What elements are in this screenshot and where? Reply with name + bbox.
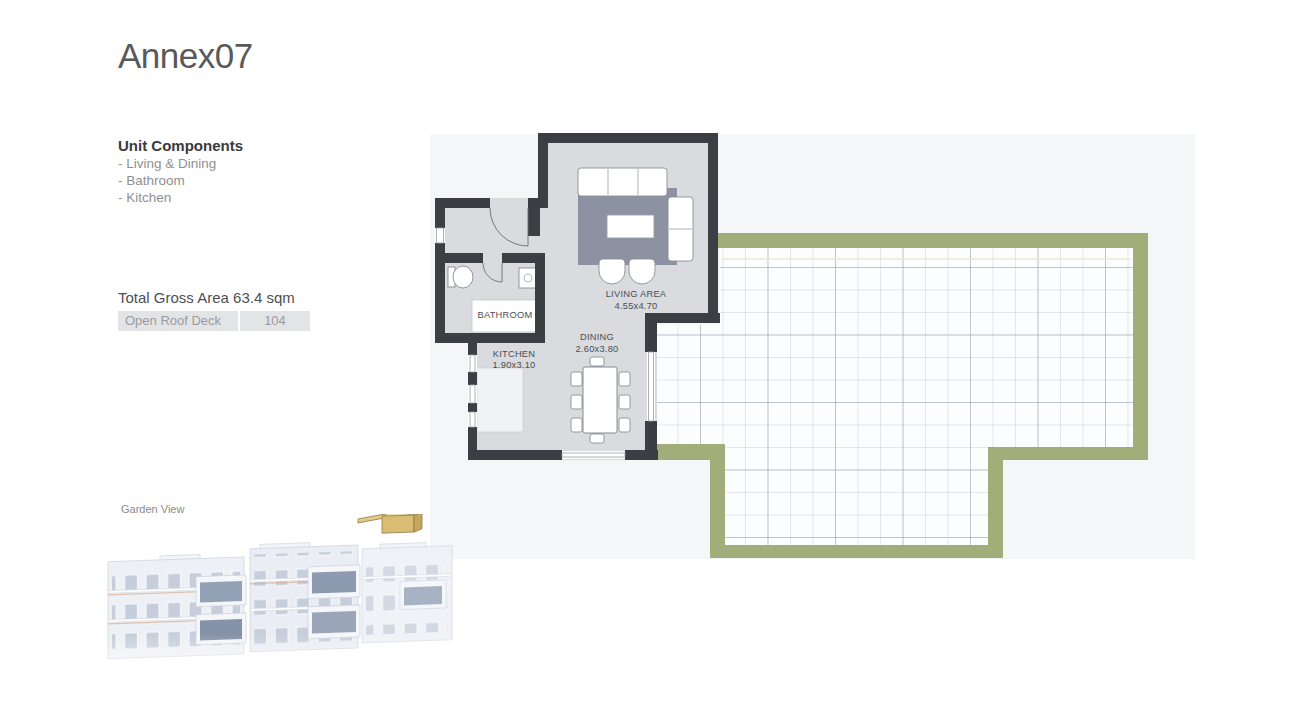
- dining-label: DINING: [580, 332, 614, 342]
- highlighted-unit: [358, 514, 422, 534]
- window: [470, 412, 475, 427]
- living-area-dims: 4.55x4.70: [614, 301, 657, 311]
- kitchen-label: KITCHEN: [493, 349, 536, 359]
- area-row-label: Open Roof Deck: [118, 311, 238, 331]
- dining-chair: [619, 372, 630, 386]
- glass-door: [649, 352, 654, 421]
- kitchen-dims: 1.90x3.10: [492, 360, 535, 370]
- coffee-table: [607, 215, 654, 238]
- living-area-label: LIVING AREA: [606, 289, 667, 299]
- dining-chair: [571, 418, 582, 432]
- area-row-value: 104: [240, 311, 310, 331]
- lounge-chair: [629, 259, 655, 284]
- building-block-right: [362, 546, 452, 643]
- dining-chair: [571, 395, 582, 409]
- toilet: [453, 266, 473, 288]
- dining-table: [583, 367, 617, 433]
- list-item: - Living & Dining: [118, 155, 216, 172]
- page: Annex07 Unit Components - Living & Dinin…: [0, 0, 1312, 717]
- dining-chair: [619, 418, 630, 432]
- roof-deck-tiles: [657, 248, 1133, 545]
- dining-chair: [590, 434, 604, 443]
- dining-dims: 2.60x3.80: [575, 344, 618, 354]
- fade-overlay: [100, 634, 465, 694]
- dining-chair: [619, 395, 630, 409]
- floor-plan: LIVING AREA 4.55x4.70 DINING 2.60x3.80 K…: [430, 132, 1195, 562]
- window: [470, 355, 475, 372]
- unit-components-list: - Living & Dining - Bathroom - Kitchen: [118, 155, 216, 206]
- bathroom-label: BATHROOM: [477, 310, 532, 320]
- kitchen-counter: [477, 368, 523, 432]
- window: [470, 385, 475, 403]
- list-item: - Bathroom: [118, 172, 216, 189]
- dining-chair: [590, 357, 604, 366]
- sofa: [578, 168, 667, 196]
- unit-components-heading: Unit Components: [118, 137, 243, 154]
- dining-chair: [571, 372, 582, 386]
- window: [437, 228, 444, 243]
- total-gross-area: Total Gross Area 63.4 sqm: [118, 289, 295, 306]
- list-item: - Kitchen: [118, 189, 216, 206]
- highlighted-unit-awning: [358, 514, 384, 523]
- lounge-chair: [599, 259, 625, 284]
- building-3d-render: [100, 514, 465, 694]
- page-title: Annex07: [118, 36, 253, 76]
- sink: [519, 268, 537, 288]
- sliding-glass-door: [562, 453, 625, 457]
